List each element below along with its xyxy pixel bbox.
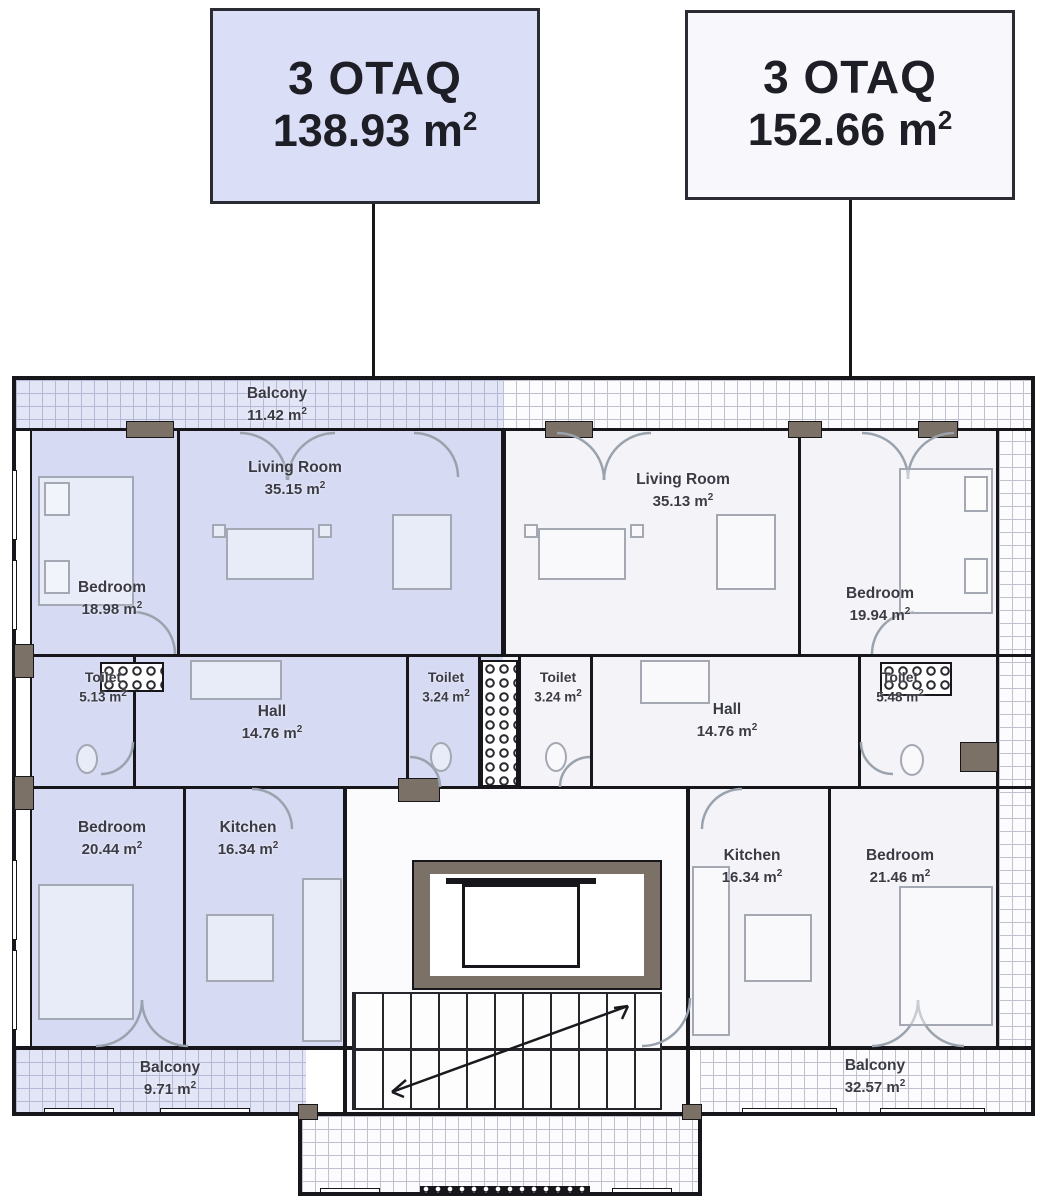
wall-bedroom2-kitchen1 bbox=[183, 789, 186, 1047]
extension-window bbox=[320, 1188, 380, 1193]
pillow-symbol bbox=[44, 482, 70, 516]
room-label-bedroom1: Bedroom 18.98 m2 bbox=[78, 578, 146, 620]
pier bbox=[126, 421, 174, 438]
callout-right-title: 3 OTAQ bbox=[763, 52, 937, 103]
pier bbox=[398, 778, 440, 802]
wardrobe-symbol bbox=[190, 660, 282, 700]
speaker-symbol bbox=[318, 524, 332, 538]
room-label-balcony-top: Balcony 11.42 m2 bbox=[247, 384, 307, 426]
wall-living2-bedroom3 bbox=[798, 430, 801, 656]
bed-symbol bbox=[38, 884, 134, 1020]
window bbox=[12, 470, 17, 540]
pillow-symbol bbox=[44, 560, 70, 594]
room-label-living2: Living Room 35.13 m2 bbox=[636, 470, 730, 512]
kitchen-table-symbol bbox=[744, 914, 812, 982]
pier bbox=[682, 1104, 702, 1120]
window bbox=[880, 1108, 985, 1113]
window bbox=[44, 1108, 114, 1113]
pier bbox=[788, 421, 822, 438]
pillow-symbol bbox=[964, 558, 988, 594]
pier bbox=[918, 421, 958, 438]
room-label-bedroom3: Bedroom 19.94 m2 bbox=[846, 584, 914, 626]
callout-left-title: 3 OTAQ bbox=[288, 53, 462, 104]
window bbox=[12, 860, 17, 940]
stair-flight-divider bbox=[352, 1048, 662, 1051]
toilet-symbol bbox=[900, 744, 924, 776]
toilet-symbol bbox=[430, 742, 452, 772]
wall-bedroom1-living1 bbox=[177, 430, 180, 656]
apartment-callout-left: 3 OTAQ 138.93 m2 bbox=[210, 8, 540, 204]
floor-plan-screenshot: 3 OTAQ 138.93 m2 3 OTAQ 152.66 m2 bbox=[0, 0, 1047, 1200]
room-label-bedroom2: Bedroom 20.44 m2 bbox=[78, 818, 146, 860]
room-label-toilet2: Toilet 3.24 m2 bbox=[422, 668, 470, 707]
wall-right-balcony-strip bbox=[996, 430, 999, 1049]
wall-toilet2-left bbox=[406, 657, 409, 788]
staircase-icon bbox=[352, 992, 662, 1110]
elevator-door-bar bbox=[446, 878, 596, 884]
wall-core-right bbox=[686, 789, 690, 1112]
elevator-cabin-icon bbox=[462, 884, 580, 968]
bottom-extension bbox=[298, 1112, 702, 1196]
apartment-callout-right: 3 OTAQ 152.66 m2 bbox=[685, 10, 1015, 200]
extension-railing-dots bbox=[420, 1186, 590, 1193]
wall-toilet3-right bbox=[590, 657, 593, 788]
wall-core-left bbox=[343, 789, 347, 1112]
pier bbox=[14, 776, 34, 810]
wall-shaft-right bbox=[518, 657, 521, 788]
room-label-toilet1: Toilet 5.13 m2 bbox=[79, 668, 127, 707]
room-label-toilet4: Toilet 5.48 m2 bbox=[876, 668, 924, 707]
sofa-symbol bbox=[538, 528, 626, 580]
window bbox=[160, 1108, 250, 1113]
callout-left-area: 138.93 m2 bbox=[273, 103, 478, 159]
window bbox=[12, 560, 17, 630]
toilet-symbol bbox=[76, 744, 98, 774]
window bbox=[12, 950, 17, 1030]
bed-symbol bbox=[899, 886, 993, 1026]
room-label-balcony-left: Balcony 9.71 m2 bbox=[140, 1058, 200, 1100]
pier bbox=[545, 421, 593, 438]
kitchen-counter-symbol bbox=[302, 878, 342, 1042]
room-label-balcony-right: Balcony 32.57 m2 bbox=[845, 1056, 906, 1098]
toilet-symbol bbox=[545, 742, 567, 772]
wall-kitchen2-bedroom4 bbox=[828, 789, 831, 1047]
window bbox=[742, 1108, 837, 1113]
speaker-symbol bbox=[212, 524, 226, 538]
kitchen-counter-symbol bbox=[692, 866, 730, 1036]
pier bbox=[14, 644, 34, 678]
pier bbox=[960, 742, 998, 772]
room-label-toilet3: Toilet 3.24 m2 bbox=[534, 668, 582, 707]
wall-toilet4-left bbox=[858, 657, 861, 788]
ventilation-shaft-icon bbox=[481, 660, 518, 787]
room-label-living1: Living Room 35.15 m2 bbox=[248, 458, 342, 500]
extension-window bbox=[612, 1188, 672, 1193]
room-label-kitchen2: Kitchen 16.34 m2 bbox=[722, 846, 783, 888]
speaker-symbol bbox=[630, 524, 644, 538]
sofa-symbol bbox=[226, 528, 314, 580]
pillow-symbol bbox=[964, 476, 988, 512]
room-label-hall2: Hall 14.76 m2 bbox=[697, 700, 758, 742]
room-label-kitchen1: Kitchen 16.34 m2 bbox=[218, 818, 279, 860]
wall-mid-upper bbox=[16, 654, 1031, 657]
room-label-bedroom4: Bedroom 21.46 m2 bbox=[866, 846, 934, 888]
pier bbox=[298, 1104, 318, 1120]
callout-right-area: 152.66 m2 bbox=[748, 102, 953, 158]
wall-apartment-divider bbox=[501, 430, 506, 656]
kitchen-table-symbol bbox=[206, 914, 274, 982]
speaker-symbol bbox=[524, 524, 538, 538]
dining-table-symbol bbox=[716, 514, 776, 590]
wall-mid-lower bbox=[16, 786, 1031, 789]
room-label-hall1: Hall 14.76 m2 bbox=[242, 702, 303, 744]
wardrobe-symbol bbox=[640, 660, 710, 704]
dining-table-symbol bbox=[392, 514, 452, 590]
